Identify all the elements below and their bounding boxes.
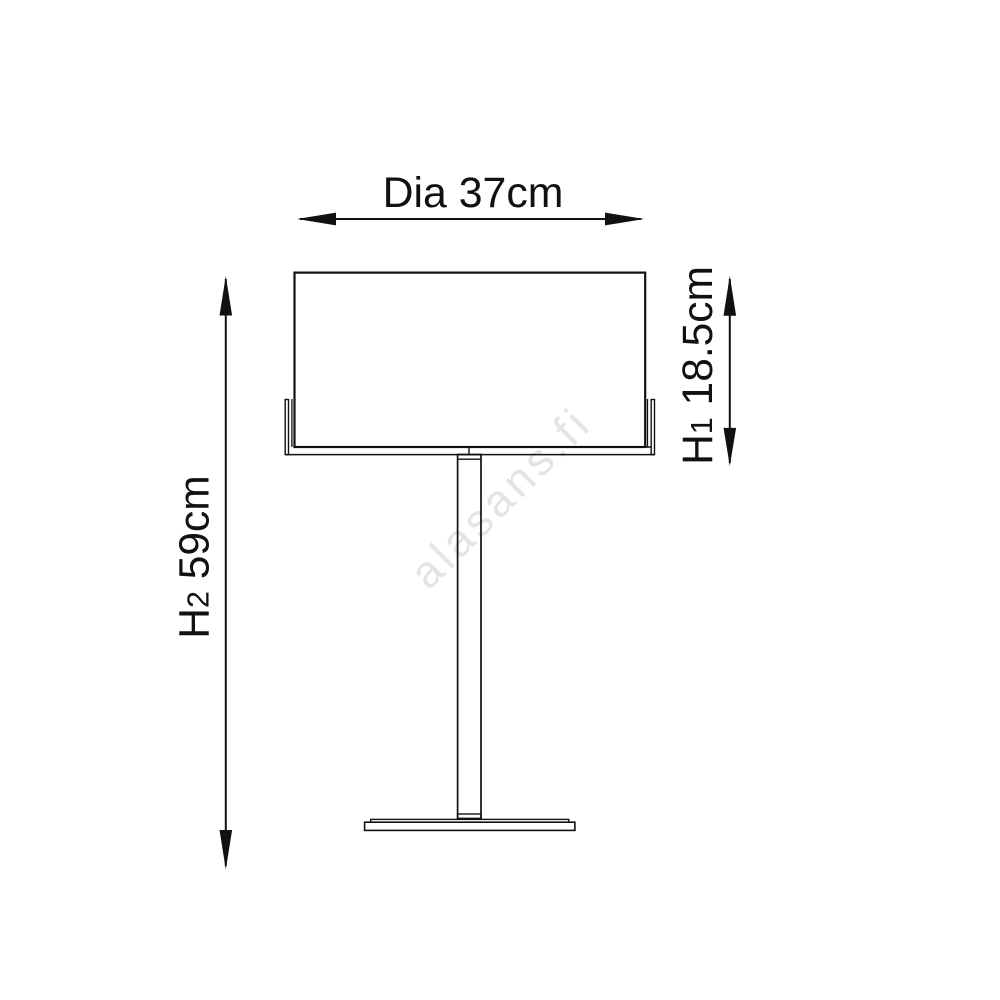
svg-text:H2 59cm: H2 59cm	[172, 475, 219, 638]
svg-text:H1 18.5cm: H1 18.5cm	[675, 266, 722, 465]
svg-text:alasans.fi: alasans.fi	[400, 397, 602, 599]
svg-text:Dia 37cm: Dia 37cm	[383, 169, 564, 217]
